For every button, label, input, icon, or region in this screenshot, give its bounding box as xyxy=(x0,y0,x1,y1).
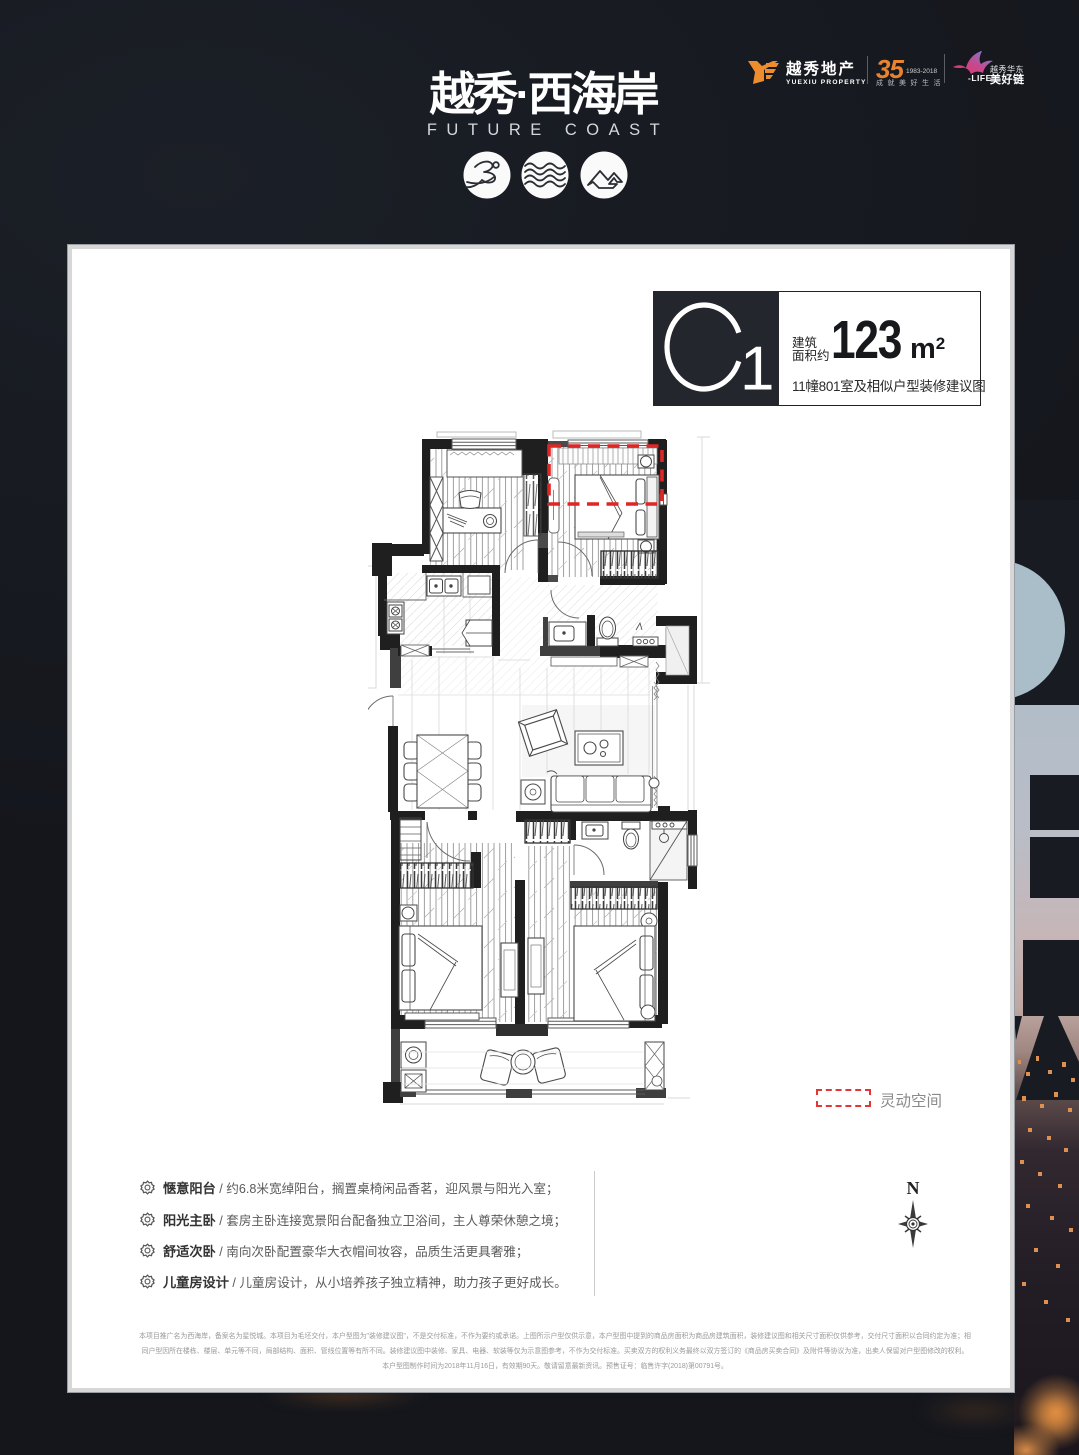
svg-text:美好链: 美好链 xyxy=(990,72,1025,86)
svg-text:越秀地产: 越秀地产 xyxy=(785,59,856,78)
svg-text:N: N xyxy=(907,1178,920,1198)
svg-text:1: 1 xyxy=(740,335,774,404)
svg-text:越秀华东: 越秀华东 xyxy=(990,64,1024,74)
svg-text:YUEXIU PROPERTY: YUEXIU PROPERTY xyxy=(786,79,867,86)
svg-text:-LIFE: -LIFE xyxy=(968,73,992,83)
